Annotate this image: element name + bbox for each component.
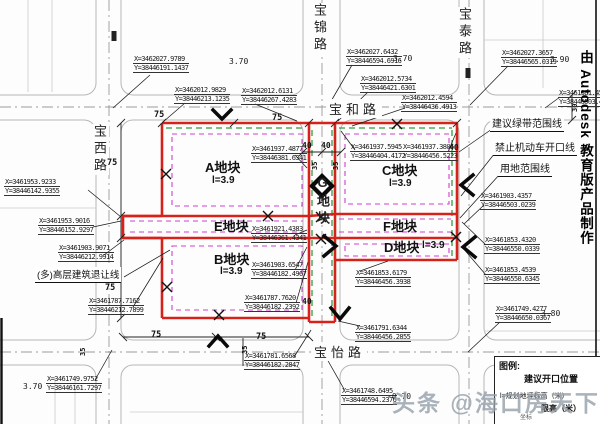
plot-elev-d: l=3.9 — [422, 240, 445, 251]
coord-label: X=3462012.9829Y=38446213.1235 — [174, 86, 230, 104]
elevation-value: 3.70 — [229, 57, 248, 66]
planning-map: 宝锦路 宝泰路 宝西路 宝和路 宝怡路 G地块 A地块 l=3.9 B地块 l=… — [0, 0, 600, 424]
autodesk-watermark: 由 Autodesk 教育版产品制作 — [575, 50, 595, 245]
coord-label: X=3461749.9752Y=38446161.7297 — [46, 375, 102, 393]
coord-label: X=3461937.4877Y=38446381.6341 — [251, 145, 307, 163]
plot-label-e: E地块 — [214, 216, 249, 235]
coord-label: X=3461937.3806Y=38446456.5223 — [402, 143, 458, 161]
dim-75: 75 — [105, 283, 115, 293]
coord-label: X=3461953.9016Y=38446152.9297 — [38, 217, 94, 235]
coord-label: X=3461903.4357Y=38446503.0239 — [480, 192, 536, 210]
plot-label-d: D地块 — [384, 237, 419, 256]
toutiao-watermark: 头条 @海口房天下 — [392, 384, 600, 418]
dim-35: 35 — [332, 162, 340, 170]
callout-land-boundary: 用地范围线 — [498, 160, 552, 177]
plot-label-a: A地块 — [205, 157, 240, 176]
coord-label: X=3461787.7620Y=38446182.2392 — [244, 294, 300, 312]
coord-label: X=3461853.6179Y=38446456.3938 — [355, 269, 411, 287]
coord-label: X=3462012.6131Y=38446267.4283 — [241, 87, 297, 105]
road-label-baojin: 宝锦路 — [310, 3, 329, 54]
coord-label: X=3461853.4320Y=38446550.0339 — [484, 236, 540, 254]
elevation-value: 3.70 — [23, 382, 42, 391]
callout-green-belt: 建议绿带范围线 — [490, 115, 564, 132]
coord-label: X=3461787.7162Y=38446212.7899 — [88, 297, 144, 315]
dim-75: 75 — [272, 113, 282, 123]
coord-label: X=3462027.9789Y=38446191.1437 — [133, 55, 189, 73]
dim-75: 75 — [154, 110, 164, 120]
coord-label: X=3461903.9071Y=38446212.9914 — [58, 244, 114, 262]
dim-75: 75 — [107, 158, 117, 168]
coord-label: X=3462012.5734Y=38446421.6301 — [360, 75, 416, 93]
plot-elev-a: l=3.9 — [212, 175, 235, 186]
elevation-value: 3.70 — [393, 54, 412, 63]
coord-label: X=3462027.3657Y=38446565.0319 — [501, 49, 557, 67]
dim-35: 35 — [79, 348, 87, 356]
plot-label-c: C地块 — [382, 160, 417, 179]
dim-75: 75 — [151, 330, 161, 340]
coord-label: X=3461791.6344Y=38446456.2855 — [355, 324, 411, 342]
coord-label: X=3462012.4594Y=38446436.4913 — [401, 94, 457, 112]
dim-40: 40 — [302, 297, 312, 306]
road-label-baohe: 宝和路 — [327, 99, 382, 118]
plot-elev-c: l=3.9 — [389, 178, 412, 189]
plot-label-f: F地块 — [383, 216, 417, 235]
callout-no-opening: 禁止机动车开口线 — [493, 139, 577, 156]
plot-elev-b: l=3.9 — [220, 266, 243, 277]
road-label-baotai: 宝泰路 — [455, 7, 474, 58]
coord-label: X=3461953.9233Y=38446142.9355 — [4, 178, 60, 196]
callout-setback: (多)高层建筑退让线 — [35, 267, 121, 283]
road-label-baoyi: 宝怡路 — [312, 342, 367, 361]
coord-label: X=3461781.6568Y=38446182.2847 — [244, 352, 300, 370]
elevation-value: 3.90 — [550, 55, 569, 64]
coord-label: X=3461937.5945Y=38446404.4172 — [350, 143, 406, 161]
dim-75: 75 — [256, 332, 266, 342]
elevation-value: 3.80 — [541, 309, 560, 318]
coord-label: X=3461853.4539Y=38446550.6345 — [484, 266, 540, 284]
plot-label-g: G地块 — [313, 175, 332, 228]
dim-40: 40 — [321, 141, 331, 150]
coord-label: X=3461921.4383Y=38446361.4341 — [251, 225, 307, 243]
dim-35: 35 — [311, 162, 319, 170]
legend-title: 图例: — [499, 359, 520, 372]
coord-label: X=3461903.6547Y=38446182.4967 — [251, 261, 307, 279]
